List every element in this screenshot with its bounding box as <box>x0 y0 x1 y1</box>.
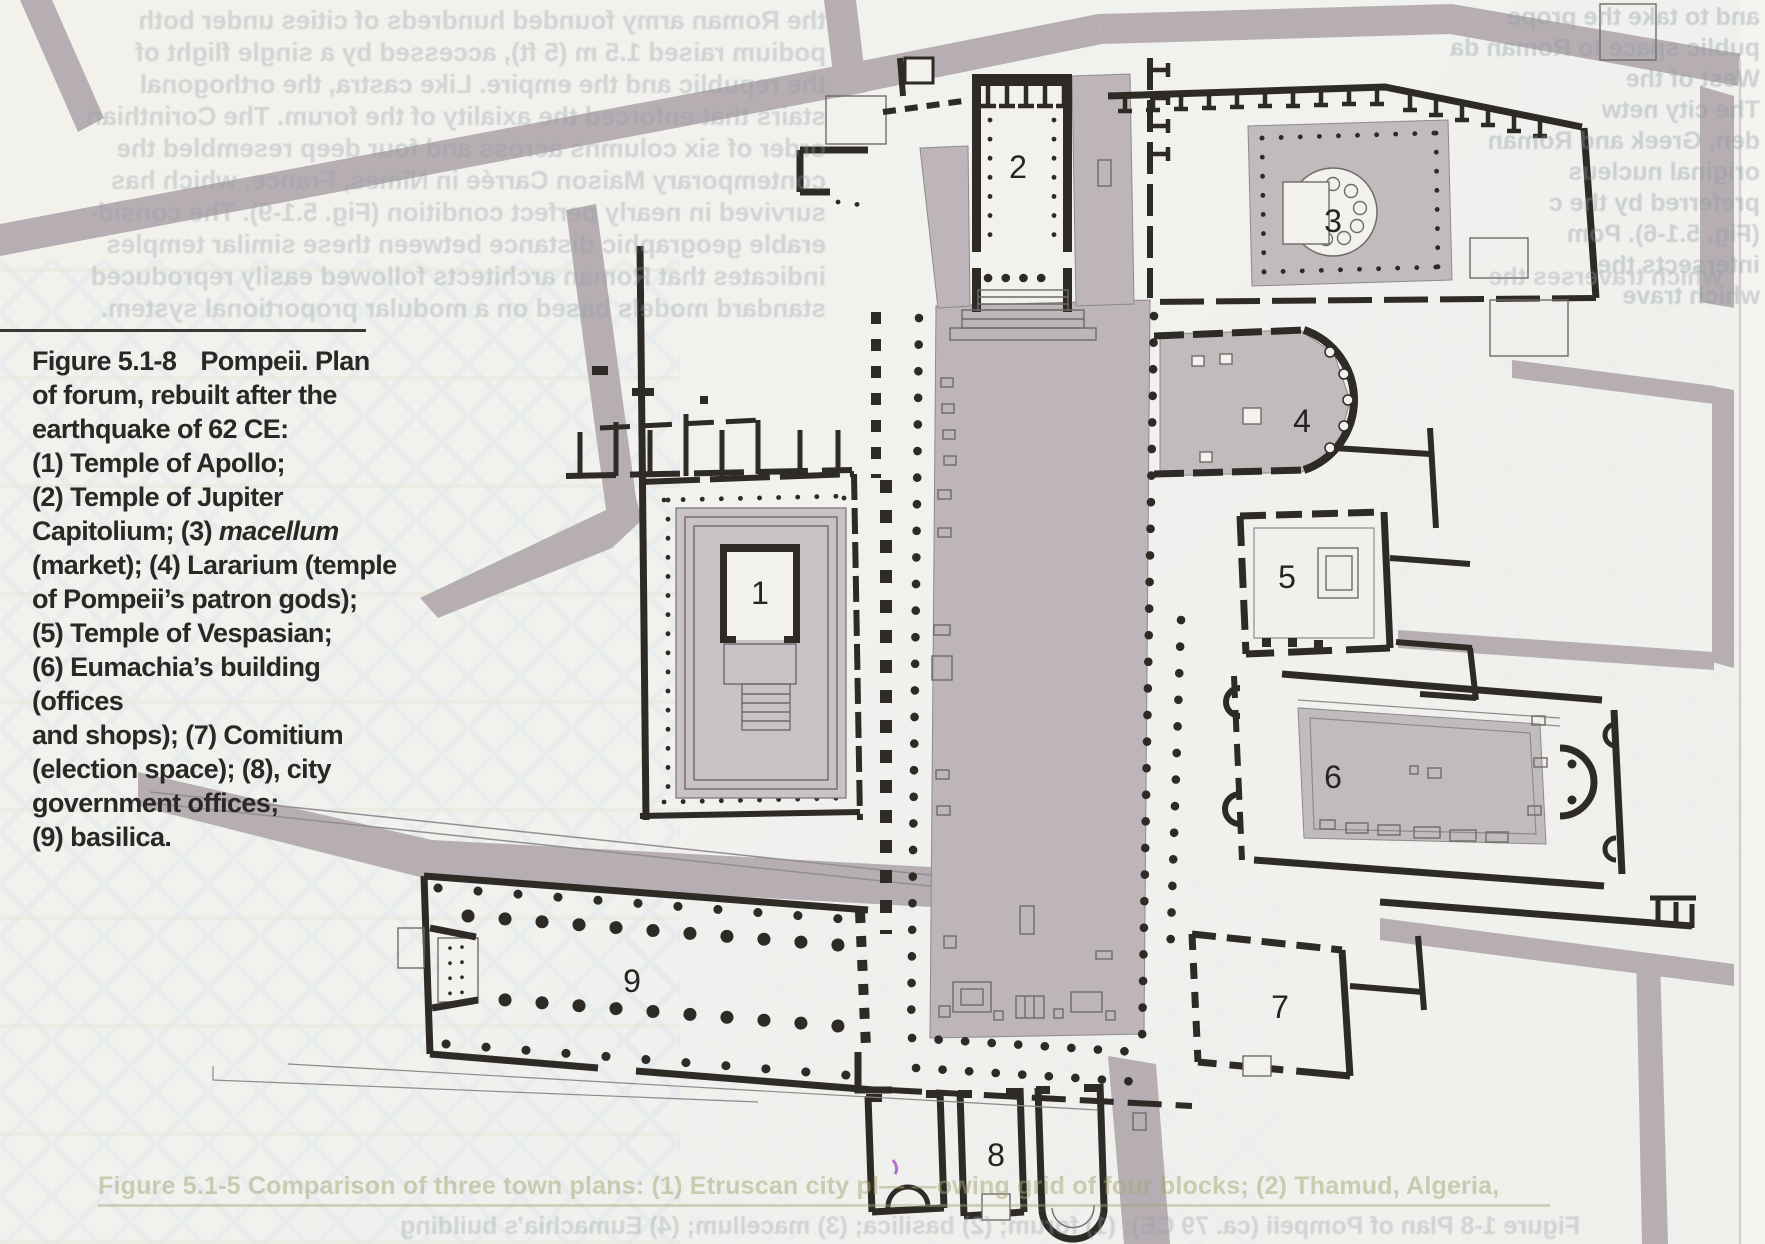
caption-line: earthquake of 62 CE: <box>32 412 412 446</box>
caption-line: government offices; <box>32 786 412 820</box>
caption-line: of forum, rebuilt after the <box>32 378 412 412</box>
caption-line: Capitolium; (3) macellum <box>32 514 412 548</box>
page-edge <box>1740 0 1765 1244</box>
scanned-book-page: 1 2 3 4 5 6 7 8 9 Figure 5.1-8Pompeii. P… <box>0 0 1765 1244</box>
figure-caption: Figure 5.1-8Pompeii. Plan of forum, rebu… <box>32 344 412 854</box>
plan-label-5: 5 <box>1278 559 1296 595</box>
lararium <box>1154 330 1354 476</box>
plan-label-4: 4 <box>1293 403 1311 439</box>
caption-line: and shops); (7) Comitium <box>32 718 412 752</box>
plan-label-9: 9 <box>623 963 641 999</box>
plan-label-2: 2 <box>1009 149 1027 185</box>
caption-line: (9) basilica. <box>32 820 412 854</box>
figure-number: Figure 5.1-8 <box>32 346 176 376</box>
caption-line: (market); (4) Lararium (temple <box>32 548 412 582</box>
plan-label-8: 8 <box>987 1137 1005 1173</box>
caption-rule <box>0 329 366 332</box>
caption-line: (6) Eumachia’s building (offices <box>32 650 412 718</box>
plan-label-7: 7 <box>1271 989 1289 1025</box>
caption-line: (5) Temple of Vespasian; <box>32 616 412 650</box>
caption-line: of Pompeii’s patron gods); <box>32 582 412 616</box>
caption-line: Figure 5.1-8Pompeii. Plan <box>32 344 412 378</box>
caption-line: (2) Temple of Jupiter <box>32 480 412 514</box>
caption-line: (election space); (8), city <box>32 752 412 786</box>
plan-label-6: 6 <box>1324 759 1342 795</box>
caption-line: (1) Temple of Apollo; <box>32 446 412 480</box>
plan-label-3: 3 <box>1324 203 1342 239</box>
plan-label-1: 1 <box>751 575 769 611</box>
italic-term: macellum <box>219 516 339 546</box>
